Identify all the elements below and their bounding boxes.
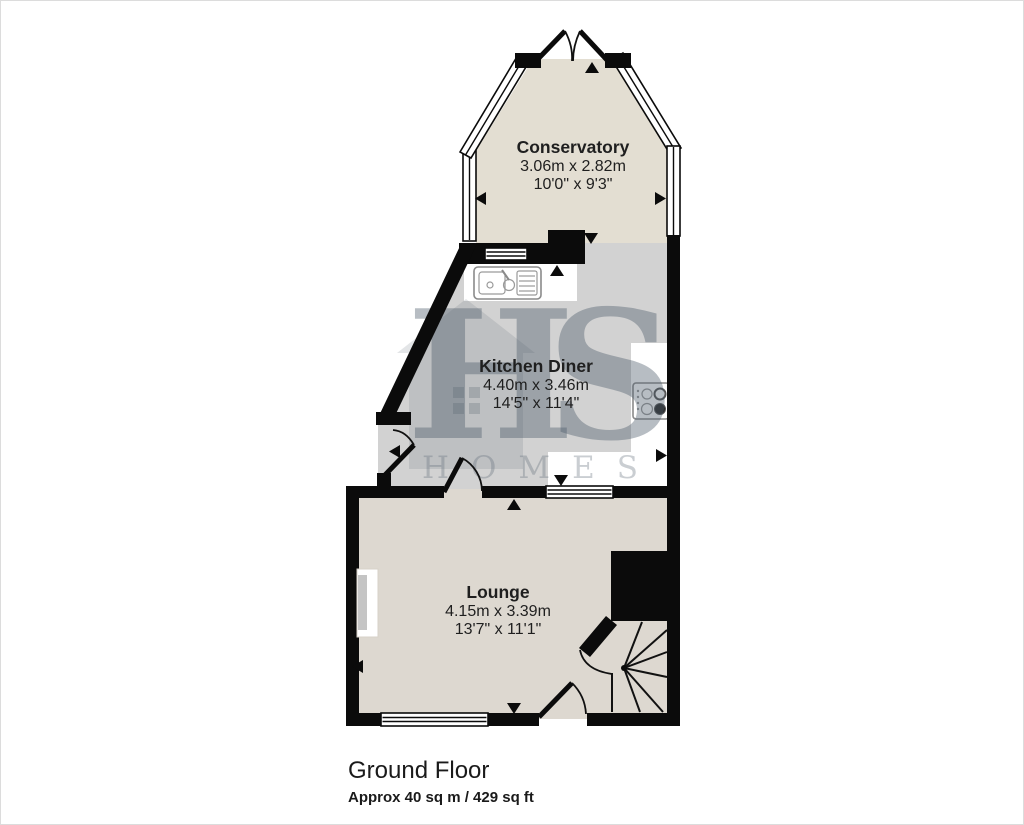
- conservatory-window-right: [667, 146, 680, 236]
- lounge-name: Lounge: [466, 582, 529, 602]
- conservatory-imperial: 10'0" x 9'3": [534, 176, 613, 193]
- wall-lounge-bottom-1: [346, 713, 381, 726]
- chimney-block: [611, 551, 667, 621]
- kitchen-name: Kitchen Diner: [479, 356, 593, 376]
- kitchen-imperial: 14'5" x 11'4": [493, 395, 580, 412]
- lounge-metric: 4.15m x 3.39m: [445, 603, 551, 620]
- wall-stub-conservatory: [548, 230, 585, 244]
- door-hinge-block-left: [515, 53, 541, 68]
- floorplan-page: HS HOMES: [0, 0, 1024, 825]
- kitchen-metric: 4.40m x 3.46m: [483, 377, 589, 394]
- door-hinge-block-right: [605, 53, 631, 68]
- wall-lounge-bottom-3: [587, 713, 680, 726]
- kitchen-rear-window: [485, 248, 527, 260]
- wall-lounge-top-1: [346, 486, 444, 498]
- conservatory-french-doors: [537, 31, 607, 61]
- conservatory-metric: 3.06m x 2.82m: [520, 158, 626, 175]
- wall-right: [667, 235, 680, 726]
- kitchen-label: Kitchen Diner 4.40m x 3.46m 14'5" x 11'4…: [479, 356, 593, 412]
- wall-lounge-top-3: [613, 486, 667, 498]
- wall-lounge-top-2: [482, 486, 546, 498]
- footer: Ground Floor Approx 40 sq m / 429 sq ft: [348, 757, 534, 806]
- wall-lounge-bottom-2: [488, 713, 539, 726]
- conservatory-window-left: [463, 149, 476, 241]
- wall-stub-sidedoor-top: [376, 412, 411, 425]
- floor-area: Approx 40 sq m / 429 sq ft: [348, 789, 534, 806]
- kitchen-lounge-window: [546, 486, 613, 498]
- conservatory-name: Conservatory: [517, 137, 630, 157]
- lounge-front-window: [381, 713, 488, 726]
- floorplan-drawing: HS HOMES: [1, 1, 1024, 825]
- floor-title: Ground Floor: [348, 757, 489, 784]
- lounge-imperial: 13'7" x 11'1": [455, 621, 542, 638]
- stair-hub: [621, 665, 627, 671]
- fireplace-recess: [357, 569, 378, 637]
